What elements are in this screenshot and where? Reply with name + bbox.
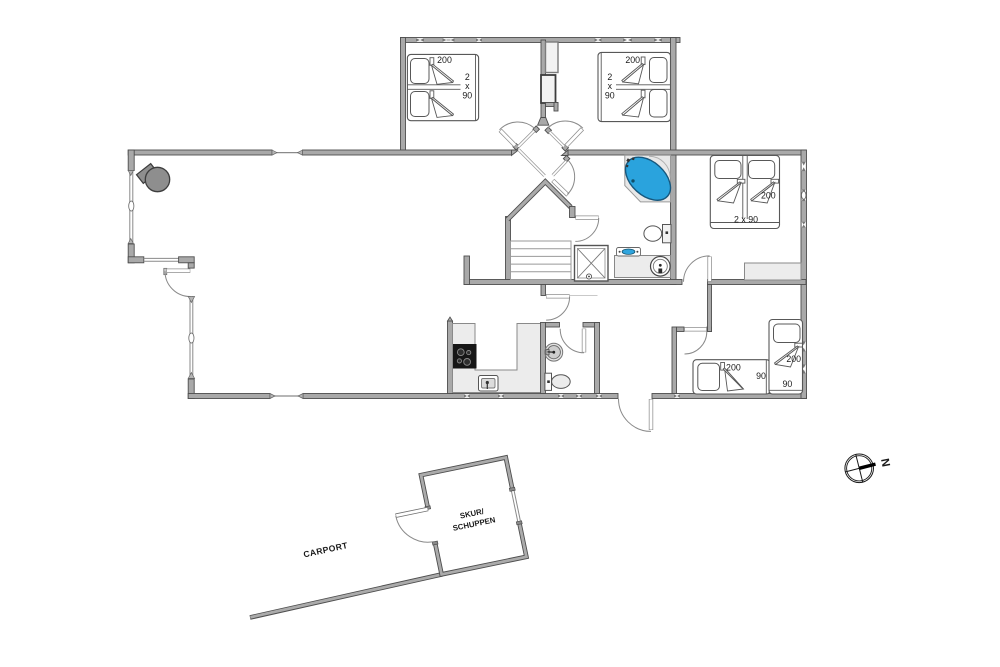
svg-text:2 x 90: 2 x 90 <box>734 215 758 225</box>
svg-text:200: 200 <box>786 354 801 364</box>
svg-text:90: 90 <box>756 371 766 381</box>
svg-text:200: 200 <box>437 55 452 65</box>
svg-text:200: 200 <box>761 191 776 201</box>
svg-text:x: x <box>608 81 613 91</box>
svg-text:200: 200 <box>625 55 640 65</box>
svg-text:200: 200 <box>726 362 741 372</box>
svg-text:90: 90 <box>605 90 615 100</box>
svg-text:x: x <box>465 81 470 91</box>
svg-text:90: 90 <box>783 379 793 389</box>
svg-text:90: 90 <box>462 91 472 101</box>
